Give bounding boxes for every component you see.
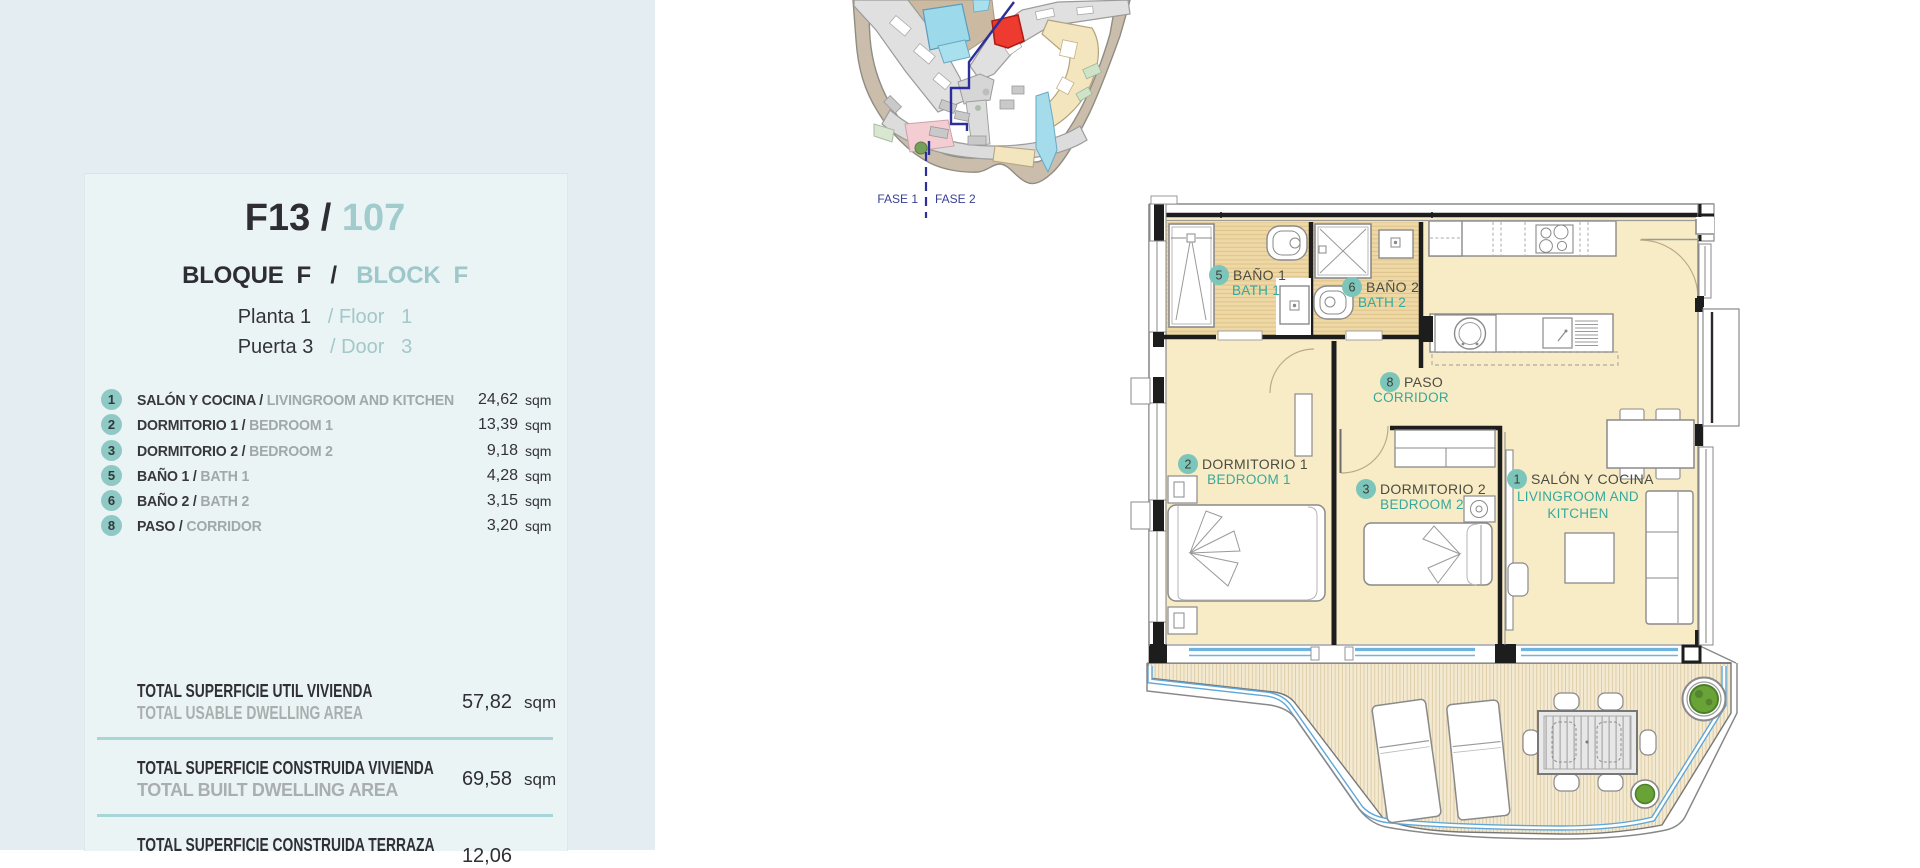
svg-text:KITCHEN: KITCHEN (1547, 506, 1608, 521)
svg-text:BAÑO 1: BAÑO 1 (1233, 267, 1286, 283)
svg-text:CORRIDOR: CORRIDOR (1373, 390, 1449, 405)
svg-text:DORMITORIO 2: DORMITORIO 2 (1380, 481, 1486, 497)
svg-text:8: 8 (1387, 376, 1394, 390)
svg-text:BEDROOM 2: BEDROOM 2 (1380, 497, 1464, 512)
svg-text:PASO: PASO (1404, 374, 1443, 390)
svg-text:3: 3 (1363, 483, 1370, 497)
svg-text:SALÓN Y COCINA: SALÓN Y COCINA (1531, 471, 1654, 487)
svg-text:6: 6 (1349, 281, 1356, 295)
svg-text:1: 1 (1514, 473, 1521, 487)
svg-text:2: 2 (1185, 458, 1192, 472)
svg-text:BAÑO 2: BAÑO 2 (1366, 279, 1419, 295)
svg-text:BEDROOM 1: BEDROOM 1 (1207, 472, 1291, 487)
svg-text:FASE 1: FASE 1 (877, 192, 918, 206)
svg-text:DORMITORIO 1: DORMITORIO 1 (1202, 456, 1308, 472)
svg-text:5: 5 (1216, 269, 1223, 283)
svg-text:BATH 1: BATH 1 (1232, 283, 1280, 298)
svg-text:LIVINGROOM AND: LIVINGROOM AND (1517, 489, 1639, 504)
svg-text:BATH 2: BATH 2 (1358, 295, 1406, 310)
svg-text:FASE 2: FASE 2 (935, 192, 976, 206)
